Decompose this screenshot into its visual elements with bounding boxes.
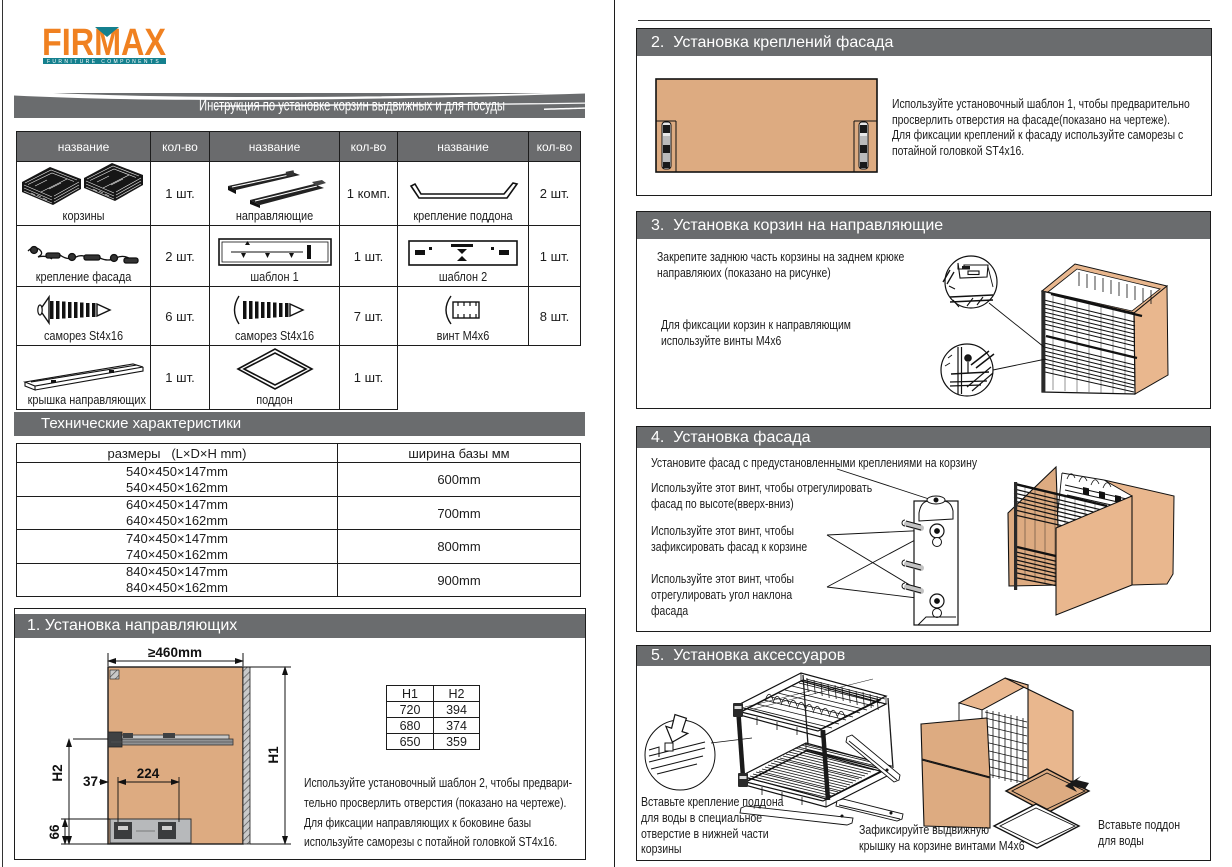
svg-text:66: 66 xyxy=(47,824,62,840)
svg-text:H2: H2 xyxy=(50,764,65,781)
svg-text:H1: H1 xyxy=(266,746,281,764)
svg-text:37: 37 xyxy=(83,774,98,789)
svg-text:224: 224 xyxy=(137,766,160,781)
svg-text:≥460mm: ≥460mm xyxy=(148,645,202,660)
svg-text:FURNITURE COMPONENTS: FURNITURE COMPONENTS xyxy=(47,59,161,65)
svg-text:Инструкция по установке корзин: Инструкция по установке корзин выдвижных… xyxy=(199,98,505,115)
